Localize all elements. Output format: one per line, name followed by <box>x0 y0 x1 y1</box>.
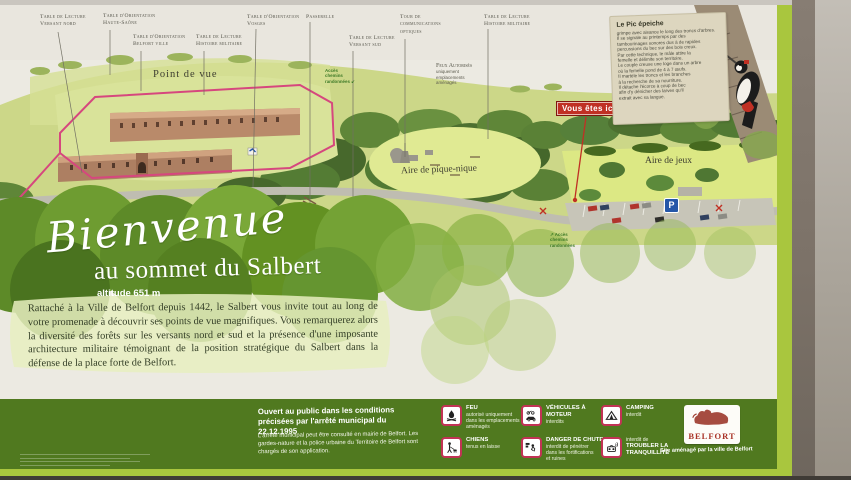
information-panel: Table de Lecture Versant nord Table d'Or… <box>0 5 792 476</box>
credits-smallprint <box>20 454 150 468</box>
logo-caption: Site aménagé par la ville de Belfort <box>660 446 770 454</box>
sign-frame-right <box>777 5 792 476</box>
rule-detail: interdit <box>626 412 684 418</box>
opening-conditions-small: L'arrêté municipal peut être consulté en… <box>258 431 438 457</box>
parking-sign: P <box>664 198 679 213</box>
dog-icon <box>441 437 462 458</box>
noise-icon <box>601 437 622 458</box>
label-acces-chemins-bottom: ↗ Accès chemins randonnées <box>550 226 575 248</box>
map-label-histoire-militaire-2: Table de Lecture Histoire militaire <box>484 14 530 29</box>
rule-vehicles: VÉHICULES À MOTEUR interdits <box>521 405 604 426</box>
intro-paragraph: Rattaché à la Ville de Belfort depuis 14… <box>28 300 378 372</box>
rule-fire: FEU autorisé uniquement dans les emplace… <box>441 405 524 430</box>
feux-detail: uniquement emplacements aménagés <box>436 69 472 86</box>
altitude-text: altitude 651 m <box>97 288 160 299</box>
map-label-histoire-militaire-1: Table de Lecture Histoire militaire <box>196 34 242 49</box>
map-label-vosges: Table d'Orientation Vosges <box>247 14 299 29</box>
nature-info-box: Le Pic épeiche grimpe avec aisance le lo… <box>609 12 730 125</box>
map-label-passerelle: Passerelle <box>306 14 334 21</box>
rule-detail: interdits <box>546 419 604 425</box>
rule-detail: tenus en laisse <box>466 444 524 450</box>
trail-marker-sign <box>248 148 257 155</box>
lion-of-belfort-icon <box>689 406 735 428</box>
label-aire-de-jeux: Aire de jeux <box>645 156 692 166</box>
rule-detail: interdit de pénétrer dans les fortificat… <box>546 444 604 462</box>
wall-post <box>792 0 815 480</box>
rule-title: CAMPING <box>626 405 684 412</box>
wall-bottom <box>0 476 851 480</box>
label-point-de-vue: Point de vue <box>153 69 218 80</box>
belfort-logo-word: BELFORT <box>684 431 740 441</box>
rule-title: DANGER DE CHUTE <box>546 437 604 444</box>
rule-title: FEU <box>466 405 524 412</box>
welcome-subtitle: au sommet du Salbert <box>94 252 322 286</box>
rule-dogs: CHIENS tenus en laisse <box>441 437 524 458</box>
map-label-tour-communications: Tour de communications optiques <box>400 14 441 36</box>
footer-band: Ouvert au public dans les conditions pré… <box>0 399 792 469</box>
nature-box-body: grimpe avec aisance le long des troncs d… <box>617 27 722 101</box>
belfort-logo: BELFORT <box>684 405 740 444</box>
fire-icon <box>441 405 462 426</box>
map-label-versant-nord: Table de Lecture Versant nord <box>40 14 86 29</box>
motor-vehicle-icon <box>521 405 542 426</box>
arrow-icon: ↙ <box>350 79 355 84</box>
label-feux-autorises: Feux Autorisés uniquement emplacements a… <box>436 63 472 86</box>
sign-frame-bottom <box>0 469 792 476</box>
tent-icon <box>601 405 622 426</box>
rule-camping: CAMPING interdit <box>601 405 684 426</box>
rule-title: CHIENS <box>466 437 524 444</box>
label-acces-chemins-top: Accès chemins randonnées ↙ <box>325 62 355 84</box>
map-label-versant-sud: Table de Lecture Versant sud <box>349 35 395 50</box>
map-label-belfort-ville: Table d'Orientation Belfort ville <box>133 34 185 49</box>
rule-title: VÉHICULES À MOTEUR <box>546 405 604 419</box>
map-label-haute-saone: Table d'Orientation Haute-Saône <box>103 13 155 28</box>
wall-right <box>815 0 851 480</box>
rule-falling: DANGER DE CHUTE interdit de pénétrer dan… <box>521 437 604 462</box>
rule-detail: autorisé uniquement dans les emplacement… <box>466 412 524 430</box>
falling-icon <box>521 437 542 458</box>
photo-of-sign: Table de Lecture Versant nord Table d'Or… <box>0 0 851 480</box>
